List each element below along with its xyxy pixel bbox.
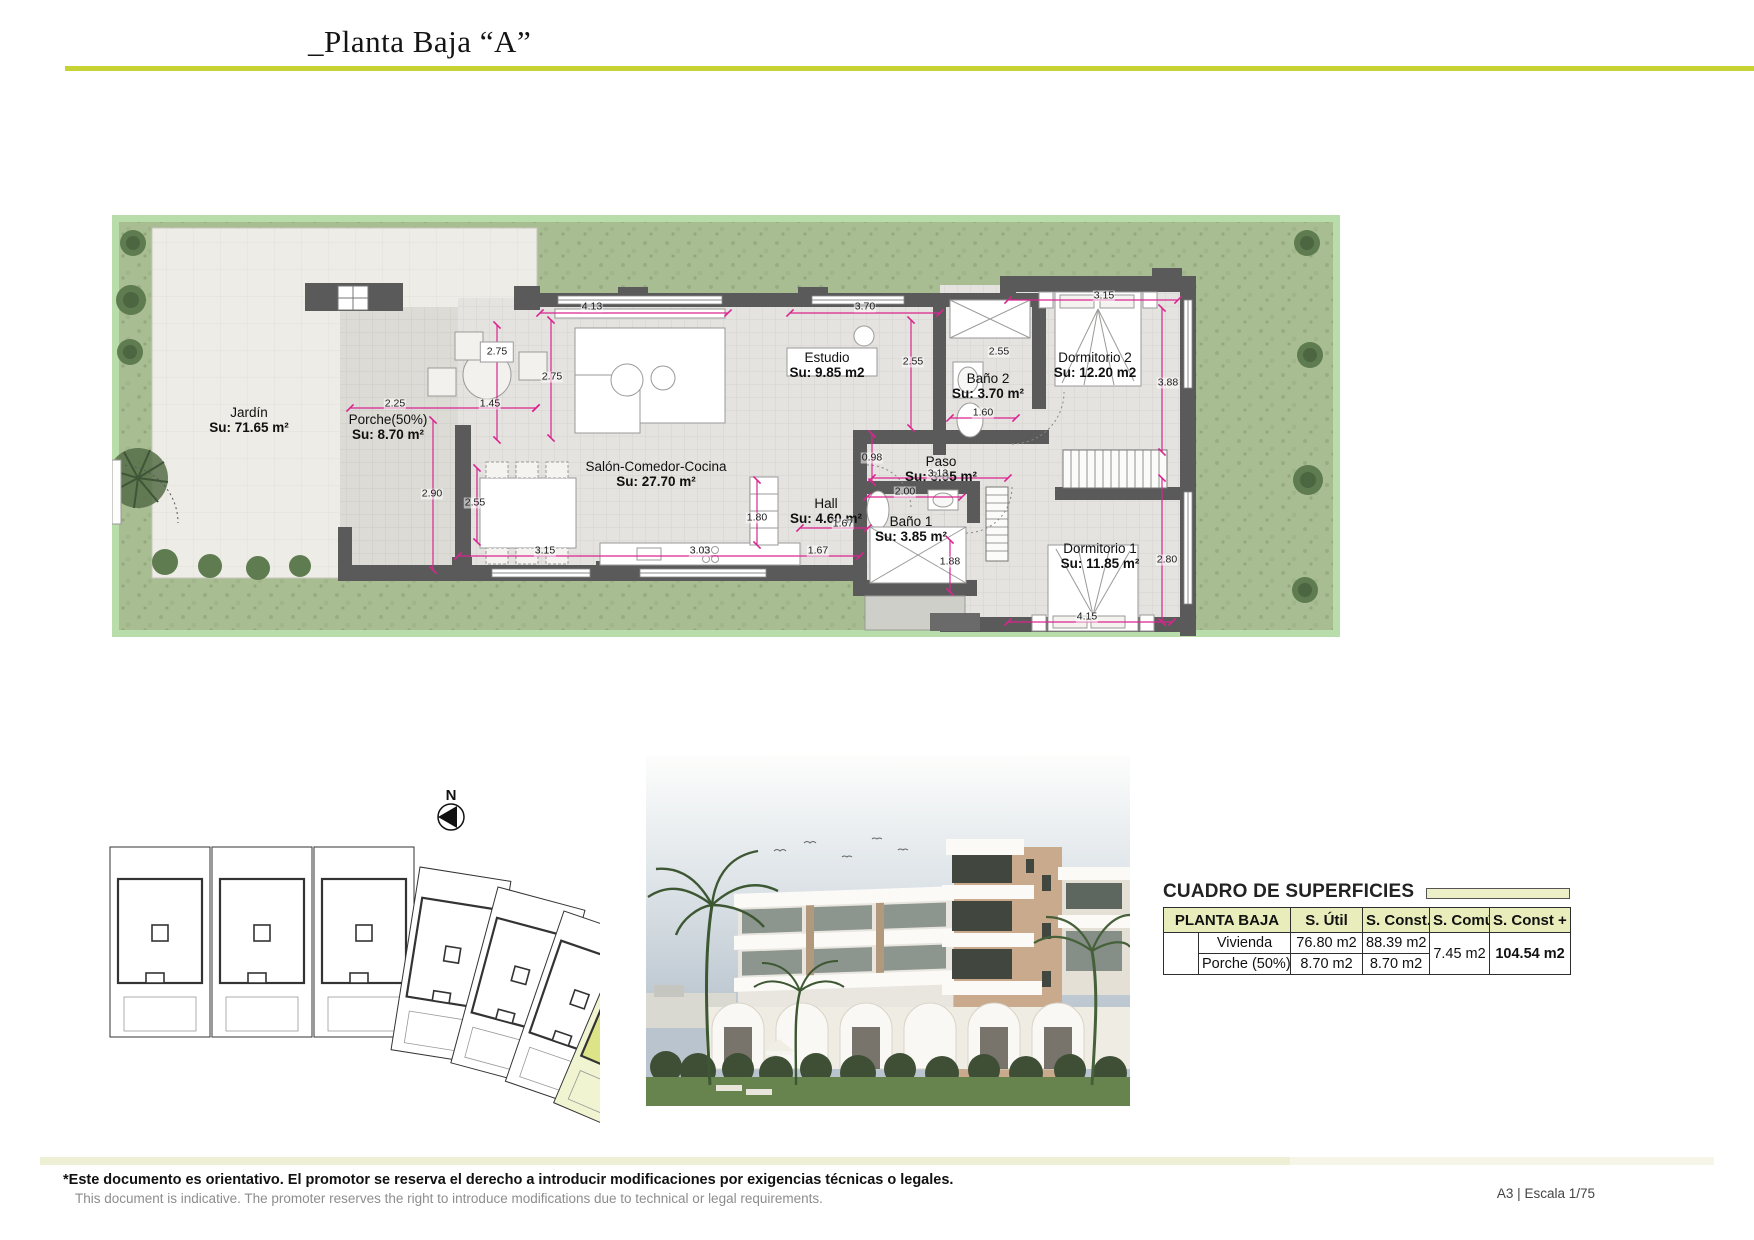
title-underline xyxy=(65,66,1754,71)
surfaces-title-bar xyxy=(1426,888,1570,899)
dimension-label: 2.75 xyxy=(541,372,563,383)
dimension-label: 1.60 xyxy=(972,408,994,419)
total-surface-value: 104.54 m2 xyxy=(1490,933,1571,975)
col-header-s-const: S. Const. xyxy=(1363,908,1430,933)
dimension-label: 3.88 xyxy=(1157,378,1179,389)
compass xyxy=(438,804,464,830)
compass-north-label: N xyxy=(441,787,461,804)
plan-labels: JardínSu: 71.65 m²Porche(50%)Su: 8.70 m²… xyxy=(112,215,1340,637)
dimension-label: 2.55 xyxy=(988,347,1010,358)
dimension-label: 2.75 xyxy=(480,342,514,363)
col-header-s-const-sc: S. Const + S.C xyxy=(1490,908,1571,933)
dimension-label: 1.67 xyxy=(807,546,829,557)
s-comun-value: 7.45 m2 xyxy=(1430,933,1490,975)
dimension-label: 2.00 xyxy=(894,487,916,498)
room-label: Porche(50%)Su: 8.70 m² xyxy=(349,412,428,442)
room-label: Dormitorio 2Su: 12.20 m2 xyxy=(1054,350,1137,380)
dimension-label: 4.15 xyxy=(1076,612,1098,623)
dimension-label: 1.80 xyxy=(746,513,768,524)
dimension-label: 3.15 xyxy=(534,546,556,557)
s-util-value: 8.70 m2 xyxy=(1291,954,1363,975)
surfaces-title: CUADRO DE SUPERFICIES xyxy=(1163,881,1414,903)
site-plan-drawing xyxy=(100,785,600,1135)
dimension-label: 1.67 xyxy=(832,519,854,530)
site-unit xyxy=(110,847,210,1037)
dimension-label: 2.80 xyxy=(1156,555,1178,566)
room-label: Dormitorio 1Su: 11.85 m² xyxy=(1061,541,1140,571)
dimension-label: 4.13 xyxy=(581,302,603,313)
room-label: Baño 2Su: 3.70 m² xyxy=(952,371,1024,401)
plan-sheet: _Planta Baja “A” xyxy=(0,0,1754,1240)
col-header-s-comun: S. Común xyxy=(1430,908,1490,933)
dimension-label: 1.88 xyxy=(939,557,961,568)
col-header-s-util: S. Útil xyxy=(1291,908,1363,933)
row-label: Porche (50%) xyxy=(1199,954,1291,975)
dimension-label: 1.45 xyxy=(479,399,501,410)
surfaces-panel: CUADRO DE SUPERFICIES PLANTA BAJA S. Úti… xyxy=(1163,881,1570,975)
dimension-label: 3.03 xyxy=(689,546,711,557)
surfaces-table: PLANTA BAJA S. Útil S. Const. S. Común S… xyxy=(1163,907,1571,975)
col-header-planta-baja: PLANTA BAJA xyxy=(1164,908,1291,933)
dimension-label: 3.13 xyxy=(927,469,949,480)
dimension-label: 2.25 xyxy=(384,399,406,410)
s-util-value: 76.80 m2 xyxy=(1291,933,1363,954)
dimension-label: 2.55 xyxy=(902,357,924,368)
dimension-label: 2.90 xyxy=(421,489,443,500)
s-const-value: 8.70 m2 xyxy=(1363,954,1430,975)
site-plan: N xyxy=(100,785,600,1135)
site-unit xyxy=(212,847,312,1037)
room-label: Baño 1Su: 3.85 m² xyxy=(875,514,947,544)
row-label: Vivienda xyxy=(1199,933,1291,954)
floor-plan: JardínSu: 71.65 m²Porche(50%)Su: 8.70 m²… xyxy=(112,215,1340,637)
dimension-label: 0.98 xyxy=(861,453,883,464)
disclaimer-en: This document is indicative. The promote… xyxy=(75,1191,823,1206)
s-const-value: 88.39 m2 xyxy=(1363,933,1430,954)
building-render-photo xyxy=(646,755,1130,1106)
dimension-label: 2.55 xyxy=(464,498,486,509)
sheet-scale-note: A3 | Escala 1/75 xyxy=(1395,1186,1595,1201)
room-label: Salón-Comedor-CocinaSu: 27.70 m² xyxy=(585,459,726,489)
room-label: EstudioSu: 9.85 m2 xyxy=(789,350,864,380)
disclaimer-es: *Este documento es orientativo. El promo… xyxy=(63,1172,953,1188)
page-title: _Planta Baja “A” xyxy=(308,24,531,60)
dimension-label: 3.70 xyxy=(854,302,876,313)
dimension-label: 3.15 xyxy=(1093,291,1115,302)
table-row: Vivienda 76.80 m2 88.39 m2 7.45 m2 104.5… xyxy=(1164,933,1571,954)
room-label: JardínSu: 71.65 m² xyxy=(209,405,289,435)
footer-divider-light xyxy=(1290,1157,1714,1165)
